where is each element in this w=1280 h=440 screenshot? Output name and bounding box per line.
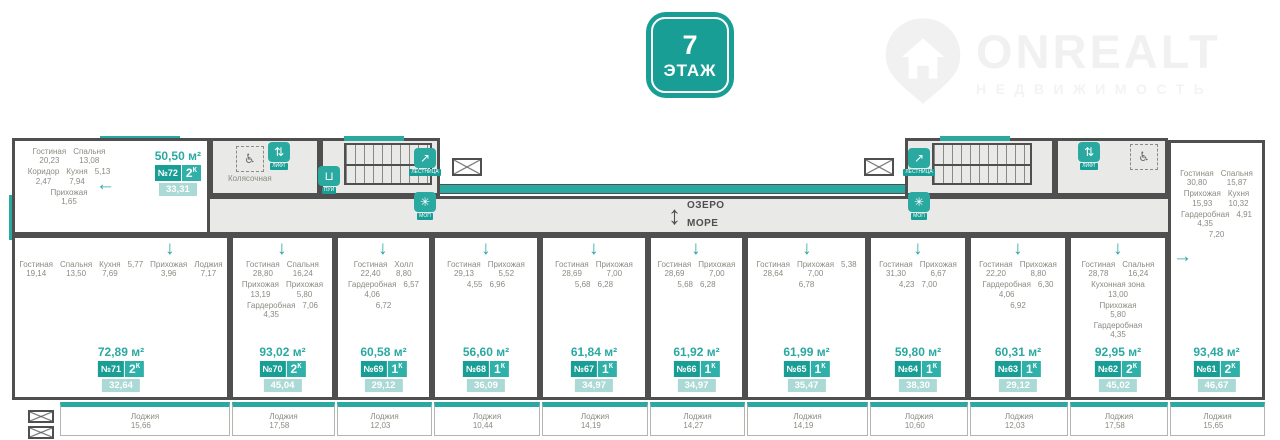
apartment-number: №69 — [360, 361, 386, 377]
loggia-name: Лоджия — [1105, 412, 1133, 421]
room-label: Спальня13,08 — [73, 147, 105, 165]
apartment-badge: 92,95 м²№622К45,02 — [1095, 345, 1141, 392]
apartment-badge: 93,02 м²№702К45,04 — [259, 345, 305, 392]
loggia-area: 14,19 — [581, 421, 609, 430]
room-name: Коридор — [28, 167, 60, 176]
loggia-label: Лоджия14,19 — [793, 412, 821, 430]
room-label: 6,72 — [376, 301, 392, 310]
room-labels: Гостиная29,13Прихожая5,524,556,96 — [438, 260, 534, 290]
room-area: 13,00 — [1091, 290, 1145, 299]
room-label: Кухня7,69 — [99, 260, 120, 278]
apartment-total-area: 61,99 м² — [783, 345, 829, 359]
room-label: 4,55 — [467, 280, 483, 289]
room-labels: Гостиная19,14Спальня13,50Кухня7,695,77Пр… — [18, 260, 224, 278]
room-area: 7,17 — [194, 269, 222, 278]
loggia-name: Лоджия — [1203, 412, 1231, 421]
apartment-№65: ↓Гостиная28,64Прихожая7,005,386,7861,99 … — [745, 235, 868, 400]
room-labels: Гостиная28,69Прихожая7,005,686,28 — [546, 260, 642, 290]
room-label: Гостиная19,14 — [19, 260, 53, 278]
stroller-room-left: ♿ Колясочная — [228, 146, 272, 183]
loggia-box-№62: Лоджия17,58 — [1070, 402, 1168, 436]
loggia-box-№68: Лоджия10,44 — [434, 402, 540, 436]
apartment-living-area: 29,12 — [999, 379, 1037, 392]
room-name: Прихожая — [50, 188, 87, 197]
room-area: 28,64 — [756, 269, 790, 278]
room-area: 16,24 — [287, 269, 319, 278]
apartment-№69: ↓Гостиная22,40Холл8,80Гардеробная4,066,5… — [335, 235, 432, 400]
loggia-name: Лоджия — [473, 412, 501, 421]
apartment-number-badge: №712К — [98, 361, 144, 377]
loggia-label: Лоджия14,27 — [683, 412, 711, 430]
room-label: Кухня10,32 — [1228, 189, 1249, 207]
apartment-badge: 50,50 м²№722К33,31 — [155, 149, 201, 196]
room-label: Гостиная20,23 — [33, 147, 67, 165]
room-label: Гостиная29,13 — [447, 260, 481, 278]
room-name: Гостиная — [1082, 260, 1116, 269]
loggia-area: 17,58 — [1105, 421, 1133, 430]
logo-text: ONREALT НЕДВИЖИМОСТЬ — [976, 28, 1221, 97]
room-name: Прихожая — [1020, 260, 1057, 269]
room-label: Прихожая13,19 — [242, 280, 279, 298]
loggia-box-№70: Лоджия17,58 — [232, 402, 335, 436]
loggia-area: 12,03 — [1005, 421, 1033, 430]
room-area: 4,91 — [1236, 210, 1252, 219]
room-name: Кухня — [1228, 189, 1249, 198]
room-name: Гостиная — [354, 260, 388, 269]
room-labels: Гостиная28,69Прихожая7,005,686,28 — [654, 260, 739, 290]
room-label: 6,28 — [700, 280, 716, 289]
apartment-badge: 72,89 м²№712К32,64 — [98, 345, 144, 392]
room-area: 15,87 — [1221, 178, 1253, 187]
room-area: 28,69 — [555, 269, 589, 278]
room-label: Гостиная22,20 — [979, 260, 1013, 278]
room-area: 5,80 — [1099, 310, 1136, 319]
entrance-arrow-icon: ↓ — [691, 239, 701, 258]
room-label: 6,96 — [490, 280, 506, 289]
entrance-arrow-icon: ↓ — [165, 239, 175, 258]
apartment-number: №71 — [98, 361, 124, 377]
room-name: Кухонная зона — [1091, 280, 1145, 289]
apartment-total-area: 93,48 м² — [1193, 345, 1239, 359]
room-area: 7,94 — [66, 177, 87, 186]
loggia-box-№65: Лоджия14,19 — [747, 402, 868, 436]
room-label: Коридор2,47 — [28, 167, 60, 185]
room-area: 4,55 — [467, 280, 483, 289]
loggia-box-№69: Лоджия12,03 — [337, 402, 432, 436]
room-name: Гардеробная — [1094, 321, 1142, 330]
entrance-arrow-icon: → — [1173, 247, 1192, 266]
room-area: 4,35 — [247, 310, 295, 319]
apartment-living-area: 35,47 — [788, 379, 826, 392]
apartment-№64: ↓Гостиная31,30Прихожая6,674,237,0059,80 … — [868, 235, 968, 400]
room-name: Прихожая — [488, 260, 525, 269]
room-area: 4,06 — [348, 290, 396, 299]
loggia-area: 14,19 — [793, 421, 821, 430]
entrance-arrow-icon: ↓ — [1013, 239, 1023, 258]
room-name: Гостиная — [555, 260, 589, 269]
room-area: 6,30 — [1038, 280, 1054, 289]
apartment-total-area: 72,89 м² — [98, 345, 144, 359]
room-labels: Гостиная30,80Спальня15,87Прихожая15,93Ку… — [1174, 169, 1259, 239]
floor-number: 7 — [682, 32, 697, 59]
room-label: Прихожая1,65 — [50, 188, 87, 206]
room-name: Спальня — [1221, 169, 1253, 178]
apartment-№62: ↓Гостиная28,78Спальня16,24Кухонная зона1… — [1068, 235, 1168, 400]
apartment-room-count: 2К — [182, 165, 201, 181]
room-name: Холл — [394, 260, 413, 269]
loggia-name: Лоджия — [131, 412, 159, 421]
room-label: Холл8,80 — [394, 260, 413, 278]
stairs-icon: ↗ ЛЕСТНИЦА — [908, 148, 930, 176]
room-label: Прихожая15,93 — [1184, 189, 1221, 207]
room-area: 3,96 — [150, 269, 187, 278]
loggia-name: Лоджия — [370, 412, 398, 421]
room-area: 29,13 — [447, 269, 481, 278]
room-area: 6,96 — [490, 280, 506, 289]
apartment-living-area: 34,97 — [575, 379, 613, 392]
apartment-number-badge: №681К — [463, 361, 509, 377]
stairs-icon: ↗ ЛЕСТНИЦА — [414, 148, 436, 176]
service-room-icon: ✳ МОП — [908, 192, 930, 220]
loggia-name: Лоджия — [581, 412, 609, 421]
loggia-area: 10,44 — [473, 421, 501, 430]
floor-number-badge: 7 ЭТАЖ — [646, 12, 734, 98]
apartment-badge: 93,48 м²№612К46,67 — [1193, 345, 1239, 392]
room-area: 7,20 — [1209, 230, 1225, 239]
loggia-label: Лоджия17,58 — [269, 412, 297, 430]
room-name: Гостиная — [979, 260, 1013, 269]
room-area: 2,47 — [28, 177, 60, 186]
loggia-label: Лоджия15,65 — [1203, 412, 1231, 430]
apartment-№68: ↓Гостиная29,13Прихожая5,524,556,9656,60 … — [432, 235, 540, 400]
room-labels: Гостиная22,40Холл8,80Гардеробная4,066,57… — [341, 260, 426, 310]
loggia-name: Лоджия — [1005, 412, 1033, 421]
room-label: Гостиная28,78 — [1082, 260, 1116, 278]
room-name: Гостиная — [447, 260, 481, 269]
room-label: Спальня16,24 — [1122, 260, 1154, 278]
loggia-box-№66: Лоджия14,27 — [650, 402, 745, 436]
apartment-room-count: 2К — [1122, 361, 1141, 377]
entrance-arrow-icon: ↓ — [913, 239, 923, 258]
room-area: 19,14 — [19, 269, 53, 278]
room-name: Прихожая — [596, 260, 633, 269]
room-name: Гостиная — [756, 260, 790, 269]
room-label: Прихожая8,80 — [1020, 260, 1057, 278]
room-name: Гостиная — [1180, 169, 1214, 178]
room-area: 28,78 — [1082, 269, 1116, 278]
floor-plan: ⇅ ЛИФТ ⊔ ПУИ ↗ ЛЕСТНИЦА ✳ МОП ↗ ЛЕСТНИЦА… — [0, 130, 1280, 440]
apartment-number: №68 — [463, 361, 489, 377]
apartment-№63: ↓Гостиная22,20Прихожая8,80Гардеробная4,0… — [968, 235, 1068, 400]
apartment-№66: ↓Гостиная28,69Прихожая7,005,686,2861,92 … — [648, 235, 745, 400]
apartment-room-count: 1К — [1022, 361, 1041, 377]
apartment-number: №66 — [673, 361, 699, 377]
room-label: Прихожая3,96 — [150, 260, 187, 278]
room-area: 4,23 — [899, 280, 915, 289]
loggia-area: 15,65 — [1203, 421, 1231, 430]
apartment-number-badge: №612К — [1193, 361, 1239, 377]
loggia-label: Лоджия12,03 — [1005, 412, 1033, 430]
room-name: Лоджия — [194, 260, 222, 269]
window-strip — [940, 136, 1010, 141]
room-label: Спальня13,50 — [60, 260, 92, 278]
room-name: Прихожая — [150, 260, 187, 269]
room-area: 7,00 — [922, 280, 938, 289]
apartment-room-count: 2К — [287, 361, 306, 377]
room-area: 20,23 — [33, 156, 67, 165]
entrance-arrow-icon: ↓ — [481, 239, 491, 258]
stroller-room-right: ♿ — [1130, 144, 1158, 170]
room-label: Прихожая5,80 — [1099, 301, 1136, 319]
room-area: 7,00 — [797, 269, 834, 278]
room-area: 6,28 — [598, 280, 614, 289]
room-name: Спальня — [60, 260, 92, 269]
room-labels: Гостиная31,30Прихожая6,674,237,00 — [874, 260, 962, 290]
loggia-area: 12,03 — [370, 421, 398, 430]
room-area: 6,92 — [1010, 301, 1026, 310]
apartment-number-badge: №671К — [571, 361, 617, 377]
loggia-area: 14,27 — [683, 421, 711, 430]
room-label: 4,91 — [1236, 210, 1252, 228]
room-name: Гостиная — [246, 260, 280, 269]
corridor-window-band — [440, 184, 905, 194]
room-labels: Гостиная28,64Прихожая7,005,386,78 — [751, 260, 862, 290]
apartment-number: №64 — [895, 361, 921, 377]
room-label: Прихожая7,00 — [797, 260, 834, 278]
room-name: Прихожая — [286, 280, 323, 289]
elevator-icon: ⇅ ЛИФТ — [1078, 142, 1100, 170]
room-area: 6,67 — [920, 269, 957, 278]
room-area: 31,30 — [879, 269, 913, 278]
room-label: Лоджия7,17 — [194, 260, 222, 278]
room-area: 4,35 — [1094, 330, 1142, 339]
apartment-room-count: 2К — [1221, 361, 1240, 377]
shaft-box — [28, 426, 54, 439]
room-label: Гардеробная4,06 — [348, 280, 396, 298]
loggia-label: Лоджия12,03 — [370, 412, 398, 430]
onrealt-logo: ONREALT НЕДВИЖИМОСТЬ — [880, 16, 1266, 108]
room-area: 28,69 — [658, 269, 692, 278]
loggia-label: Лоджия10,60 — [905, 412, 933, 430]
room-name: Гардеробная — [247, 301, 295, 310]
room-label: 6,78 — [799, 280, 815, 289]
room-labels: Гостиная22,20Прихожая8,80Гардеробная4,06… — [974, 260, 1062, 310]
room-name: Гостиная — [879, 260, 913, 269]
room-name: Гардеробная — [983, 280, 1031, 289]
apartment-№70: ↓Гостиная28,80Спальня16,24Прихожая13,19П… — [230, 235, 335, 400]
room-name: Прихожая — [920, 260, 957, 269]
room-name: Спальня — [1122, 260, 1154, 269]
loggia-label: Лоджия15,66 — [131, 412, 159, 430]
room-area: 10,32 — [1228, 199, 1249, 208]
room-label: Гардеробная4,06 — [983, 280, 1031, 298]
room-area: 8,80 — [394, 269, 413, 278]
entrance-arrow-icon: ↓ — [277, 239, 287, 258]
loggia-name: Лоджия — [793, 412, 821, 421]
apartment-badge: 56,60 м²№681К36,09 — [463, 345, 509, 392]
apartment-number: №72 — [155, 165, 181, 181]
room-label: Гостиная28,69 — [555, 260, 589, 278]
loggia-name: Лоджия — [269, 412, 297, 421]
apartment-badge: 61,84 м²№671К34,97 — [571, 345, 617, 392]
room-name: Прихожая — [1099, 301, 1136, 310]
shaft-box — [28, 410, 54, 423]
room-area: 1,65 — [50, 197, 87, 206]
room-label: Прихожая5,52 — [488, 260, 525, 278]
apartment-total-area: 93,02 м² — [259, 345, 305, 359]
apartment-living-area: 29,12 — [365, 379, 403, 392]
room-area: 13,50 — [60, 269, 92, 278]
room-area: 6,57 — [403, 280, 419, 289]
room-label: Гостиная28,64 — [756, 260, 790, 278]
apartment-total-area: 59,80 м² — [895, 345, 941, 359]
room-label: Спальня15,87 — [1221, 169, 1253, 187]
room-labels: Гостиная28,80Спальня16,24Прихожая13,19Пр… — [236, 260, 329, 319]
room-label: Прихожая7,00 — [596, 260, 633, 278]
floor-plan-page: 7 ЭТАЖ ONREALT НЕДВИЖИМОСТЬ — [0, 0, 1280, 440]
room-label: 7,20 — [1209, 230, 1225, 239]
room-name: Прихожая — [698, 260, 735, 269]
loggia-box-№63: Лоджия12,03 — [970, 402, 1068, 436]
apartment-total-area: 50,50 м² — [155, 149, 201, 163]
room-area: 5,77 — [128, 260, 144, 269]
apartment-number-badge: №622К — [1095, 361, 1141, 377]
room-name: Гардеробная — [1181, 210, 1229, 219]
room-area: 5,52 — [488, 269, 525, 278]
room-area: 13,08 — [73, 156, 105, 165]
orientation-compass: ↕ ОЗЕРО МОРЕ — [668, 200, 725, 229]
room-area: 6,28 — [700, 280, 716, 289]
lake-label: ОЗЕРО — [687, 200, 725, 211]
room-name: Прихожая — [242, 280, 279, 289]
room-area: 5,80 — [286, 290, 323, 299]
apartment-№71: ↓Гостиная19,14Спальня13,50Кухня7,695,77П… — [12, 235, 230, 400]
apartment-room-count: 1К — [922, 361, 941, 377]
logo-brand: ONREALT — [976, 28, 1221, 75]
apartment-room-count: 1К — [388, 361, 407, 377]
apartment-number-badge: №722К — [155, 165, 201, 181]
loggia-box-№61: Лоджия15,65 — [1170, 402, 1265, 436]
window-strip — [344, 136, 404, 141]
room-area: 30,80 — [1180, 178, 1214, 187]
apartment-living-area: 36,09 — [467, 379, 505, 392]
room-label: Гардеробная4,35 — [1181, 210, 1229, 228]
service-room-icon: ✳ МОП — [414, 192, 436, 220]
apartment-number: №63 — [995, 361, 1021, 377]
apartment-№67: ↓Гостиная28,69Прихожая7,005,686,2861,84 … — [540, 235, 648, 400]
floor-label: ЭТАЖ — [663, 62, 716, 79]
room-area: 15,93 — [1184, 199, 1221, 208]
apartment-room-count: 1К — [811, 361, 830, 377]
apartment-total-area: 60,58 м² — [360, 345, 406, 359]
room-area: 7,00 — [596, 269, 633, 278]
apartment-badge: 61,99 м²№651К35,47 — [783, 345, 829, 392]
room-area: 16,24 — [1122, 269, 1154, 278]
loggia-box-№64: Лоджия10,60 — [870, 402, 968, 436]
apartment-№61: →Гостиная30,80Спальня15,87Прихожая15,93К… — [1168, 140, 1265, 400]
room-label: Гостиная22,40 — [354, 260, 388, 278]
entrance-arrow-icon: ← — [96, 175, 115, 194]
apartment-living-area: 33,31 — [159, 183, 197, 196]
apartment-living-area: 45,02 — [1099, 379, 1137, 392]
apartment-total-area: 92,95 м² — [1095, 345, 1141, 359]
apartment-room-count: 1К — [701, 361, 720, 377]
loggia-name: Лоджия — [683, 412, 711, 421]
apartment-living-area: 32,64 — [102, 379, 140, 392]
room-area: 28,80 — [246, 269, 280, 278]
room-area: 22,40 — [354, 269, 388, 278]
apartment-badge: 60,31 м²№631К29,12 — [995, 345, 1041, 392]
apartment-living-area: 46,67 — [1198, 379, 1236, 392]
apartment-total-area: 61,92 м² — [673, 345, 719, 359]
room-label: Гостиная28,80 — [246, 260, 280, 278]
room-area: 8,80 — [1020, 269, 1057, 278]
logo-subtitle: НЕДВИЖИМОСТЬ — [976, 81, 1213, 97]
apartment-№72: ←Гостиная20,23Спальня13,08Коридор2,47Кух… — [12, 138, 210, 235]
room-label: Прихожая6,67 — [920, 260, 957, 278]
room-name: Кухня — [99, 260, 120, 269]
cleaning-room-icon: ⊔ ПУИ — [318, 166, 340, 194]
apartment-number-badge: №631К — [995, 361, 1041, 377]
loggia-name: Лоджия — [905, 412, 933, 421]
room-label: Прихожая5,80 — [286, 280, 323, 298]
room-label: Гардеробная4,35 — [1094, 321, 1142, 339]
room-name: Спальня — [287, 260, 319, 269]
room-label: 6,30 — [1038, 280, 1054, 298]
staircase-right — [932, 143, 1032, 185]
apartment-number-badge: №641К — [895, 361, 941, 377]
apartment-living-area: 34,97 — [678, 379, 716, 392]
apartment-living-area: 38,30 — [899, 379, 937, 392]
room-name: Гостиная — [19, 260, 53, 269]
apartment-room-count: 1К — [490, 361, 509, 377]
loggia-area: 15,66 — [131, 421, 159, 430]
apartment-total-area: 60,31 м² — [995, 345, 1041, 359]
room-label: 4,23 — [899, 280, 915, 289]
loggia-label: Лоджия10,44 — [473, 412, 501, 430]
apartment-number: №70 — [259, 361, 285, 377]
room-area: 6,78 — [799, 280, 815, 289]
apartment-badge: 60,58 м²№691К29,12 — [360, 345, 406, 392]
room-area: 22,20 — [979, 269, 1013, 278]
entrance-arrow-icon: ↓ — [589, 239, 599, 258]
apartment-living-area: 45,04 — [264, 379, 302, 392]
room-label: Кухонная зона13,00 — [1091, 280, 1145, 298]
room-label: Спальня16,24 — [287, 260, 319, 278]
apartment-total-area: 61,84 м² — [571, 345, 617, 359]
room-label: 7,06 — [302, 301, 318, 319]
room-labels: Гостиная28,78Спальня16,24Кухонная зона13… — [1074, 260, 1162, 340]
room-name: Гостиная — [658, 260, 692, 269]
room-label: 5,77 — [128, 260, 144, 278]
entrance-arrow-icon: ↓ — [802, 239, 812, 258]
apartment-number: №61 — [1193, 361, 1219, 377]
room-area: 5,38 — [841, 260, 857, 269]
wheelchair-icon: ♿ — [236, 146, 264, 172]
entrance-arrow-icon: ↓ — [378, 239, 388, 258]
room-label: Гостиная28,69 — [658, 260, 692, 278]
room-name: Прихожая — [797, 260, 834, 269]
apartment-badge: 61,92 м²№661К34,97 — [673, 345, 719, 392]
room-area: 7,06 — [302, 301, 318, 310]
room-label: 5,68 — [575, 280, 591, 289]
room-area: 5,68 — [677, 280, 693, 289]
apartment-number-badge: №702К — [259, 361, 305, 377]
room-name: Прихожая — [1184, 189, 1221, 198]
loggia-label: Лоджия14,19 — [581, 412, 609, 430]
room-name: Кухня — [66, 167, 87, 176]
room-label: Гардеробная4,35 — [247, 301, 295, 319]
